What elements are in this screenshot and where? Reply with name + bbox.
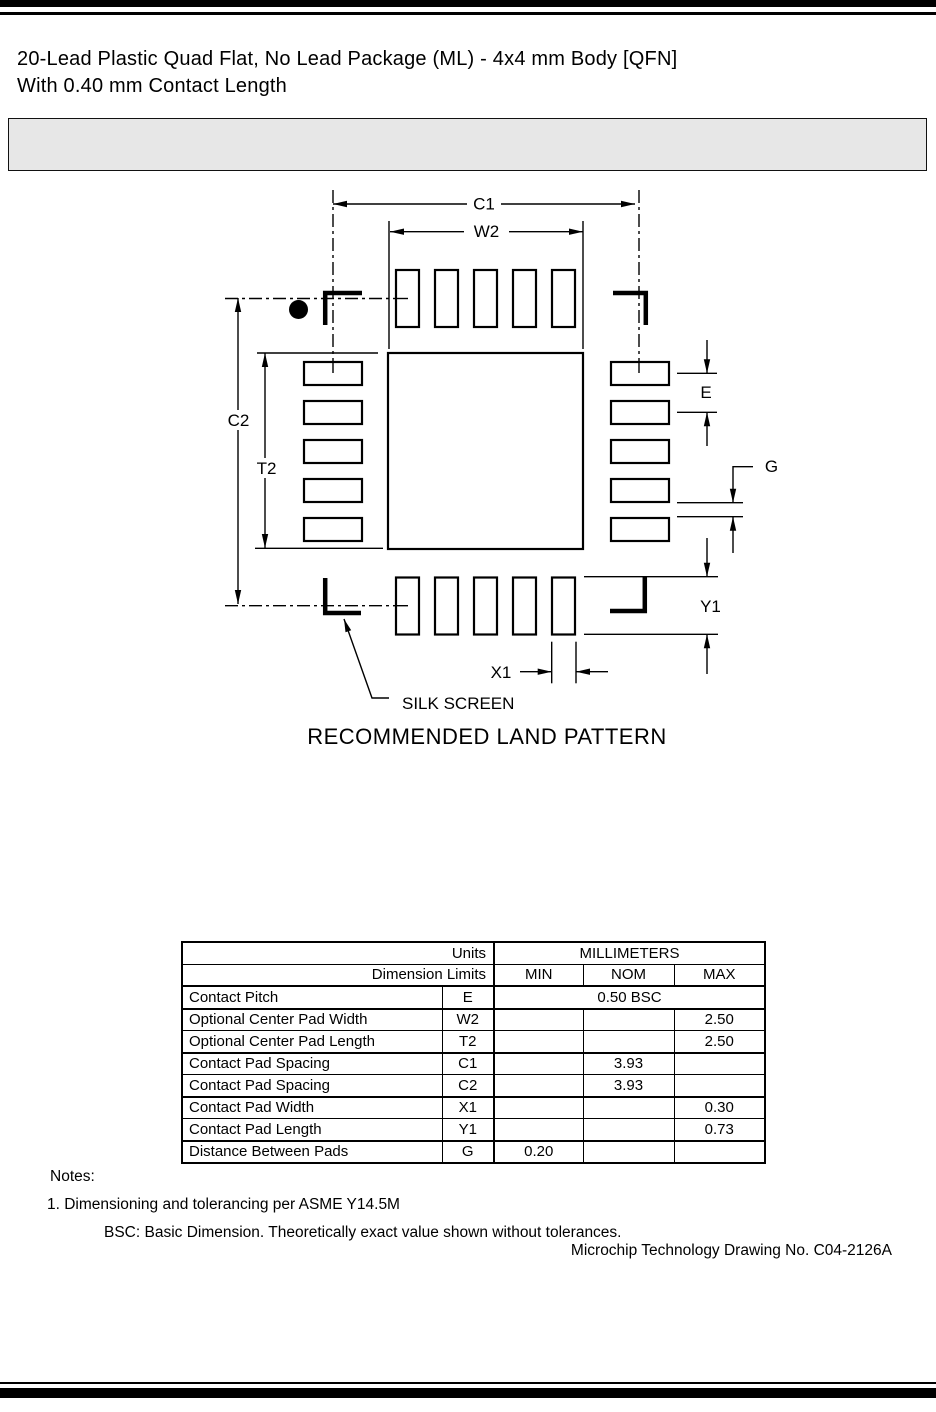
dim-max — [674, 1053, 765, 1075]
dim-max: 0.73 — [674, 1119, 765, 1141]
dim-nom — [583, 1009, 674, 1031]
dim-nom — [583, 1097, 674, 1119]
dim-max: 0.30 — [674, 1097, 765, 1119]
dim-max: 2.50 — [674, 1031, 765, 1053]
silk-screen-label: SILK SCREEN — [402, 694, 514, 713]
dim-min: 0.20 — [494, 1141, 583, 1164]
dim-min — [494, 1053, 583, 1075]
notes-heading: Notes: — [50, 1168, 95, 1186]
dimension-lines — [238, 204, 753, 698]
copper-pads — [304, 270, 669, 635]
dim-nom — [583, 1141, 674, 1164]
top-thin-rule — [0, 12, 936, 15]
page-title-line2: With 0.40 mm Contact Length — [17, 73, 677, 100]
limits-label-cell: Dimension Limits — [182, 964, 494, 986]
page-title-line1: 20-Lead Plastic Quad Flat, No Lead Packa… — [17, 46, 677, 73]
units-label-cell: Units — [182, 942, 494, 964]
table-row: Contact Pad Length Y1 0.73 — [182, 1119, 765, 1141]
dim-label-y1: Y1 — [700, 597, 721, 616]
dim-nom: 3.93 — [583, 1053, 674, 1075]
dim-name: Optional Center Pad Width — [182, 1009, 442, 1031]
center-pad — [388, 353, 583, 549]
note-item-1: 1. Dimensioning and tolerancing per ASME… — [47, 1196, 400, 1214]
drawing-caption: RECOMMENDED LAND PATTERN — [307, 724, 667, 749]
dim-label-g: G — [765, 457, 778, 476]
page-title: 20-Lead Plastic Quad Flat, No Lead Packa… — [17, 46, 677, 100]
dim-span-value: 0.50 BSC — [494, 986, 765, 1009]
dim-symbol: C1 — [442, 1053, 494, 1075]
dim-symbol: X1 — [442, 1097, 494, 1119]
dim-name: Optional Center Pad Length — [182, 1031, 442, 1053]
dim-label-e: E — [700, 383, 711, 402]
dim-name: Contact Pad Width — [182, 1097, 442, 1119]
dim-label-x1: X1 — [491, 663, 512, 682]
dim-symbol: Y1 — [442, 1119, 494, 1141]
dim-nom — [583, 1031, 674, 1053]
pin1-indicator-dot — [289, 300, 308, 319]
silk-screen-corners — [325, 293, 646, 613]
table-row-limits: Dimension Limits MIN NOM MAX — [182, 964, 765, 986]
table-row: Contact Pad Spacing C2 3.93 — [182, 1075, 765, 1097]
label-masks — [224, 196, 509, 479]
dimension-labels: C1 W2 C2 T2 E G Y1 X1 SILK SCREEN — [228, 195, 778, 714]
dim-label-c1: C1 — [473, 195, 495, 214]
dim-min — [494, 1097, 583, 1119]
units-value-cell: MILLIMETERS — [494, 942, 765, 964]
dim-min — [494, 1009, 583, 1031]
dim-min — [494, 1031, 583, 1053]
table-row-units: Units MILLIMETERS — [182, 942, 765, 964]
table-row: Contact Pad Spacing C1 3.93 — [182, 1053, 765, 1075]
max-header-cell: MAX — [674, 964, 765, 986]
center-lines — [225, 190, 639, 606]
table-row: Optional Center Pad Width W2 2.50 — [182, 1009, 765, 1031]
bottom-thick-rule — [0, 1388, 936, 1398]
dim-symbol: C2 — [442, 1075, 494, 1097]
dim-label-t2: T2 — [257, 459, 277, 478]
table-row: Contact Pitch E 0.50 BSC — [182, 986, 765, 1009]
dim-symbol: T2 — [442, 1031, 494, 1053]
dim-symbol: E — [442, 986, 494, 1009]
note-item-2: BSC: Basic Dimension. Theoretically exac… — [104, 1224, 622, 1242]
dim-max — [674, 1075, 765, 1097]
dim-name: Contact Pad Spacing — [182, 1053, 442, 1075]
dim-max: 2.50 — [674, 1009, 765, 1031]
dimension-arrowheads — [235, 201, 736, 675]
table-row: Contact Pad Width X1 0.30 — [182, 1097, 765, 1119]
silk-screen-leader — [344, 619, 389, 698]
drawing-number: Microchip Technology Drawing No. C04-212… — [571, 1242, 892, 1260]
dim-symbol: W2 — [442, 1009, 494, 1031]
dimension-table: Units MILLIMETERS Dimension Limits MIN N… — [181, 941, 766, 1164]
dim-label-w2: W2 — [474, 222, 500, 241]
table-row: Optional Center Pad Length T2 2.50 — [182, 1031, 765, 1053]
nom-header-cell: NOM — [583, 964, 674, 986]
dim-nom — [583, 1119, 674, 1141]
dim-nom: 3.93 — [583, 1075, 674, 1097]
dim-max — [674, 1141, 765, 1164]
dim-min — [494, 1075, 583, 1097]
dim-label-c2: C2 — [228, 411, 250, 430]
datasheet-page: 20-Lead Plastic Quad Flat, No Lead Packa… — [0, 0, 936, 1412]
dim-name: Contact Pitch — [182, 986, 442, 1009]
top-thick-rule — [0, 0, 936, 7]
center-line-ends — [333, 299, 639, 606]
section-heading-box — [8, 118, 927, 171]
dim-name: Contact Pad Spacing — [182, 1075, 442, 1097]
dim-name: Distance Between Pads — [182, 1141, 442, 1164]
dim-name: Contact Pad Length — [182, 1119, 442, 1141]
dim-symbol: G — [442, 1141, 494, 1164]
dim-min — [494, 1119, 583, 1141]
min-header-cell: MIN — [494, 964, 583, 986]
bottom-thin-rule — [0, 1382, 936, 1384]
table-row: Distance Between Pads G 0.20 — [182, 1141, 765, 1164]
